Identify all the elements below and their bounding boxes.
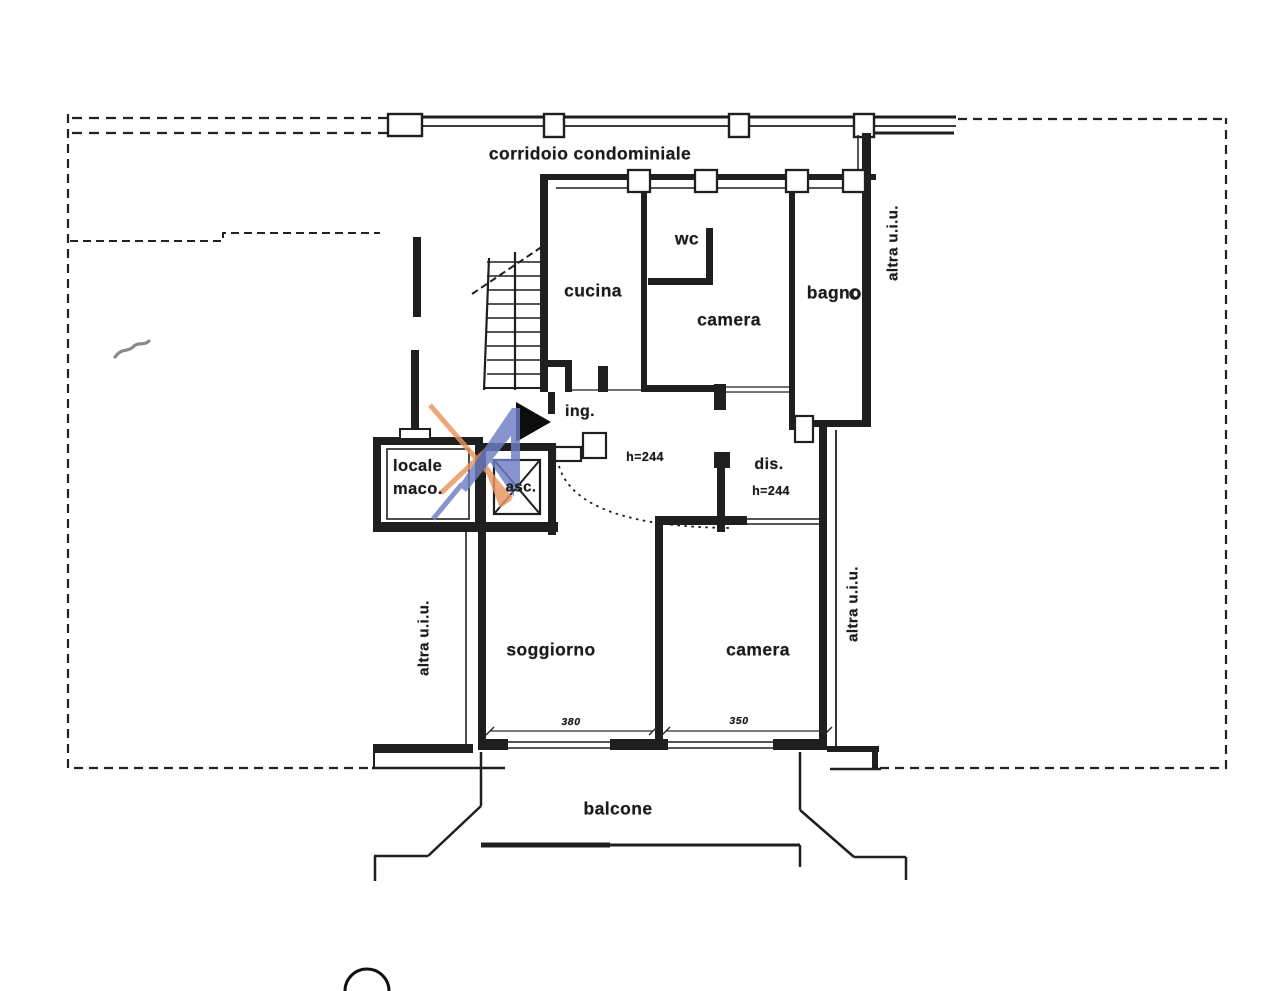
locale-macchine-line1: locale <box>393 455 443 478</box>
room-label-bagno: bagno <box>807 283 862 304</box>
locale-macchine-line2: maco. <box>393 478 443 501</box>
room-label-balcone: balcone <box>584 799 653 820</box>
room-label-locale-macchine: locale maco. <box>393 455 443 501</box>
room-label-ingresso: ing. <box>565 403 595 421</box>
handwritten-mark <box>115 341 149 357</box>
room-label-cucina: cucina <box>564 281 622 302</box>
room-label-wc: wc <box>675 229 699 250</box>
dimension-camera: 350 <box>729 715 748 727</box>
other-unit-label-top-right: altra u.i.u. <box>885 205 902 281</box>
height-annotation-disimpegno: h=244 <box>752 484 790 498</box>
height-annotation-ingresso: h=244 <box>626 450 664 464</box>
bottom-arc-mark <box>345 969 389 991</box>
room-label-soggiorno: soggiorno <box>506 640 595 661</box>
staircase <box>472 246 543 390</box>
floor-plan-canvas: corridoio condominiale cucina wc camera … <box>0 0 1284 991</box>
entrance-arrow-icon <box>516 402 551 442</box>
other-unit-label-left: altra u.i.u. <box>416 600 433 676</box>
dimension-soggiorno: 380 <box>561 716 580 728</box>
label-corridor: corridoio condominiale <box>489 144 691 165</box>
room-label-camera-bottom: camera <box>726 640 790 661</box>
entrance-door-symbol <box>555 433 606 461</box>
room-label-disimpegno: dis. <box>754 456 783 474</box>
room-label-ascensore: asc. <box>506 479 537 496</box>
room-label-camera-top: camera <box>697 310 761 331</box>
stair-cut-line <box>472 246 543 294</box>
corridor-pillar <box>729 114 749 137</box>
other-unit-label-bottom-right: altra u.i.u. <box>845 566 862 642</box>
corridor-pillar <box>544 114 564 137</box>
